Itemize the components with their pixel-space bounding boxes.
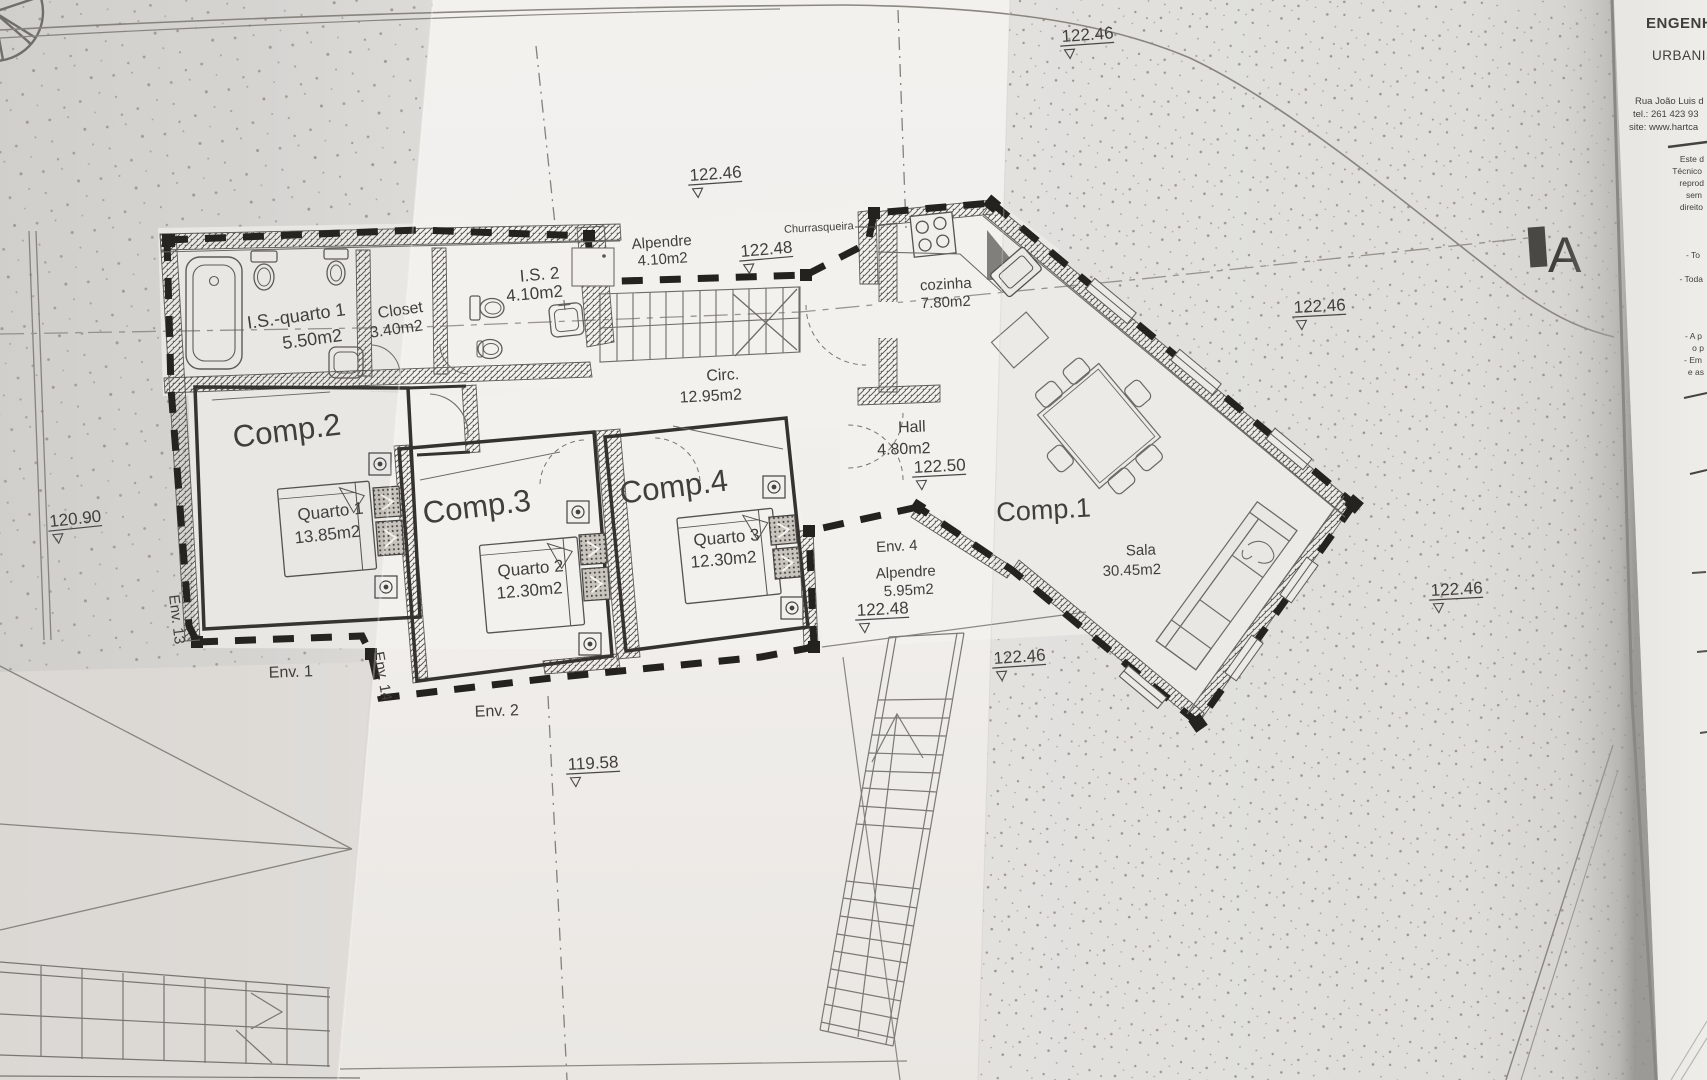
- svg-text:Alpendre: Alpendre: [875, 562, 936, 582]
- svg-text:- Em: - Em: [1684, 355, 1702, 365]
- svg-text:122.48: 122.48: [856, 598, 909, 620]
- svg-text:- To: - To: [1686, 250, 1700, 260]
- svg-text:- Toda: - Toda: [1680, 274, 1704, 284]
- svg-text:ENGENHA: ENGENHA: [1646, 15, 1707, 32]
- svg-text:Env. 4: Env. 4: [876, 537, 918, 556]
- svg-text:tel.: 261 423 93: tel.: 261 423 93: [1633, 109, 1699, 120]
- svg-text:Técnico: Técnico: [1672, 166, 1702, 176]
- svg-text:12.95m2: 12.95m2: [679, 386, 742, 406]
- svg-text:4.80m2: 4.80m2: [877, 440, 931, 459]
- svg-text:URBANIS: URBANIS: [1652, 48, 1707, 63]
- svg-text:Este d: Este d: [1680, 154, 1704, 164]
- svg-text:e as: e as: [1688, 367, 1704, 377]
- svg-text:4.10m2: 4.10m2: [637, 249, 688, 269]
- svg-text:direito: direito: [1680, 202, 1703, 212]
- svg-text:Rua João Luis d: Rua João Luis d: [1635, 96, 1704, 107]
- svg-text:sem: sem: [1686, 190, 1702, 200]
- svg-text:7.80m2: 7.80m2: [920, 293, 971, 313]
- svg-text:5.95m2: 5.95m2: [883, 581, 934, 601]
- svg-text:Env. 2: Env. 2: [474, 702, 519, 721]
- svg-text:o p: o p: [1692, 343, 1704, 353]
- svg-text:Circ.: Circ.: [706, 366, 740, 385]
- svg-text:cozinha: cozinha: [920, 275, 973, 295]
- svg-text:- A p: - A p: [1685, 331, 1702, 341]
- svg-text:Hall: Hall: [898, 419, 926, 437]
- svg-text:119.58: 119.58: [567, 752, 619, 774]
- svg-text:site: www.hartca: site: www.hartca: [1629, 122, 1699, 133]
- svg-text:reprod: reprod: [1679, 178, 1704, 188]
- svg-text:122.50: 122.50: [913, 455, 966, 477]
